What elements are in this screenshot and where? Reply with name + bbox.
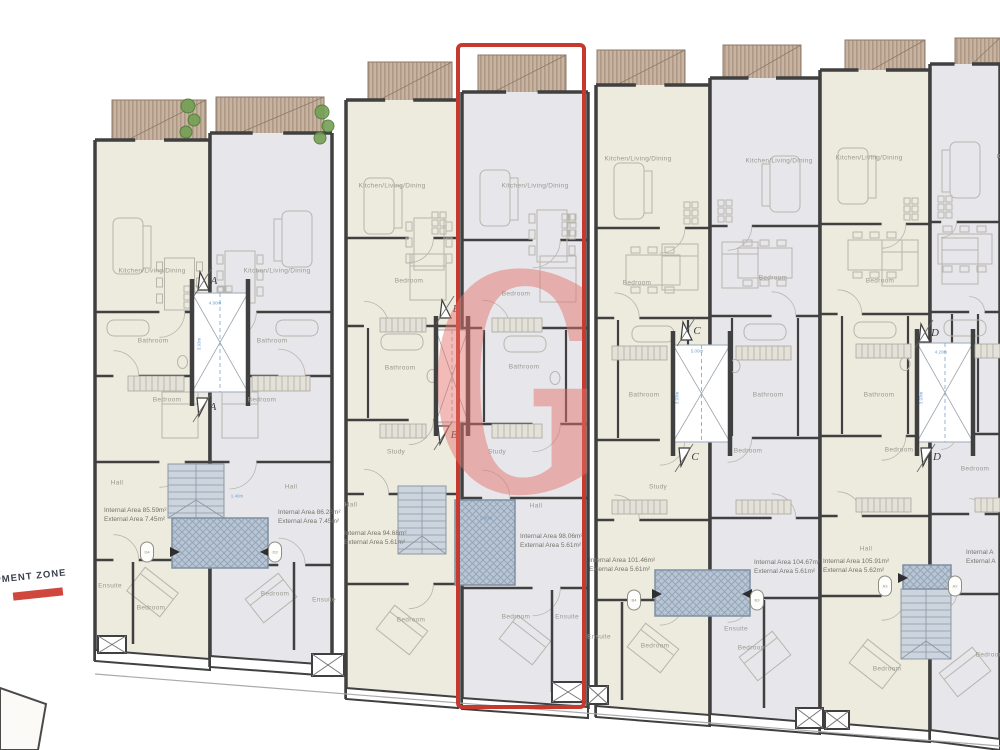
floorplan-page: Kitchen/Living/DiningKitchen/Living/Dini… <box>0 0 1000 750</box>
selected-unit-highlight[interactable] <box>456 43 586 709</box>
